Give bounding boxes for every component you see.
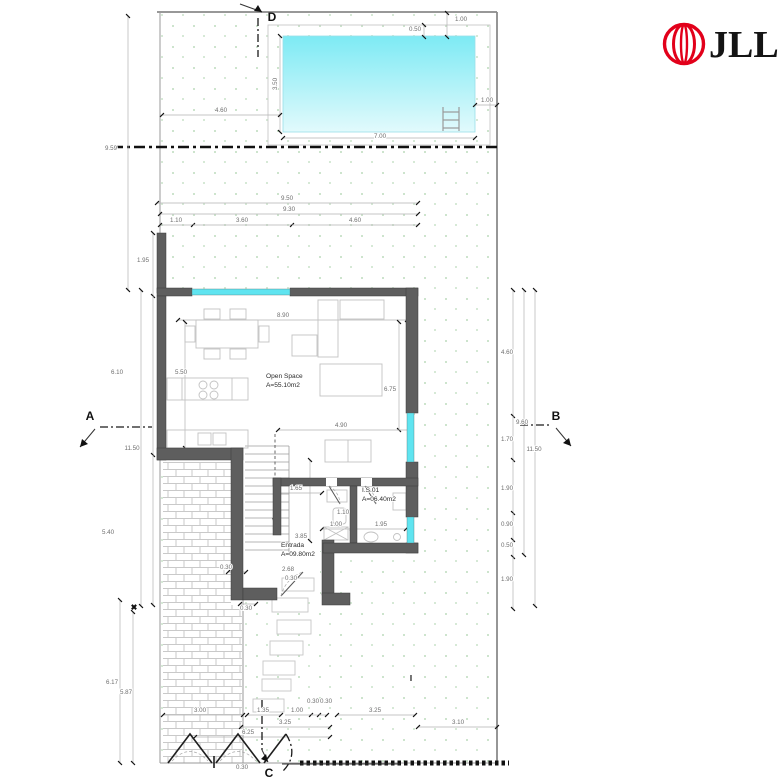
- room-name: Entrada: [281, 542, 304, 549]
- dimension-label: 6.17: [106, 679, 119, 686]
- dimension-label: 2.68: [282, 566, 295, 573]
- dimension-label: 4.60: [501, 349, 514, 356]
- dimension-label: 4.90: [335, 422, 348, 429]
- dimension-label: 5.50: [175, 369, 188, 376]
- dimension-label: 1.00: [455, 16, 468, 23]
- section-marker-letter: C: [265, 766, 274, 780]
- dimension-label: 1.90: [501, 485, 514, 492]
- section-marker-letter: B: [552, 409, 561, 423]
- dimension-label: 1.00: [481, 97, 494, 104]
- dimension-label: 3.50: [272, 77, 279, 90]
- window: [192, 289, 290, 295]
- dimension-label: 1.10: [170, 217, 183, 224]
- annotation-symbol: ✖: [131, 603, 138, 612]
- jll-logo: JLL: [665, 24, 779, 66]
- dimension-label: 3.00: [194, 707, 207, 714]
- section-marker-letter: A: [86, 409, 95, 423]
- entrance-floor: [243, 448, 320, 600]
- dimension-label: 0.90: [501, 521, 514, 528]
- jll-logo-text: JLL: [709, 24, 779, 66]
- dimension-label: 5.87: [120, 689, 133, 696]
- dimension-label: 6.10: [111, 369, 124, 376]
- dimension-label: 1.10: [337, 509, 350, 516]
- section-marker-letter: D: [268, 10, 277, 24]
- dimension-label: 9.59: [105, 145, 118, 152]
- dimension-label: 9.60: [516, 419, 529, 426]
- swimming-pool: [283, 36, 475, 132]
- dimension-label: 0.30: [307, 698, 320, 705]
- dimension-label: 0.50: [501, 542, 514, 549]
- dimension-label: 3.60: [236, 217, 249, 224]
- dimension-label: 1.35: [257, 707, 270, 714]
- dimension-label: 9.50: [281, 195, 294, 202]
- dimension-label: 11.50: [124, 445, 140, 452]
- window: [407, 517, 414, 543]
- dimension-label: 1.90: [501, 576, 514, 583]
- dimension-label: 1.00: [330, 521, 343, 528]
- dimension-label: 1.65: [290, 485, 303, 492]
- dimension-label: 0.30: [285, 575, 298, 582]
- room-area: A=55.10m2: [266, 382, 300, 389]
- room-name: Open Space: [266, 373, 303, 380]
- dimension-label: 1.95: [137, 257, 150, 264]
- dimension-label: 0.30: [236, 764, 249, 771]
- room-area: A=06.40m2: [362, 496, 396, 503]
- room-area: A=09.80m2: [281, 551, 315, 558]
- room-name: I.S.01: [362, 487, 380, 494]
- dimension-label: 6.75: [384, 386, 397, 393]
- dimension-label: 6.25: [242, 729, 255, 736]
- annotation-symbol: I: [410, 674, 412, 683]
- dimension-label: 3.10: [452, 719, 465, 726]
- dimension-label: 11.50: [526, 446, 542, 453]
- dimension-label: 0.30: [320, 698, 333, 705]
- dimension-label: 3.25: [279, 719, 292, 726]
- dimension-label: 0.30: [220, 564, 233, 571]
- dimension-label: 3.85: [295, 533, 308, 540]
- dimension-label: 7.00: [374, 133, 387, 140]
- floor-plan-drawing: 9.509.301.103.604.603.504.607.001.000.50…: [0, 0, 780, 780]
- dimension-label: 4.60: [215, 107, 228, 114]
- dimension-label: 0.50: [409, 26, 422, 33]
- dimension-label: 0.30: [240, 605, 253, 612]
- pool-area: [268, 25, 490, 145]
- dimension-label: 3.25: [369, 707, 382, 714]
- dimension-label: 4.60: [349, 217, 362, 224]
- dimension-label: 5.40: [102, 529, 115, 536]
- jll-globe-icon: [665, 25, 704, 64]
- brick-patio-upper: [163, 462, 231, 605]
- dimension-label: 8.90: [277, 312, 290, 319]
- dimension-label: 1.95: [375, 521, 388, 528]
- dimension-label: 9.30: [283, 206, 296, 213]
- door-gap: [361, 478, 372, 486]
- brick-patio-lower: [163, 605, 242, 763]
- door-gap: [326, 478, 337, 486]
- window: [407, 413, 414, 462]
- dimension-label: 1.00: [291, 707, 304, 714]
- dimension-label: 1.70: [501, 436, 514, 443]
